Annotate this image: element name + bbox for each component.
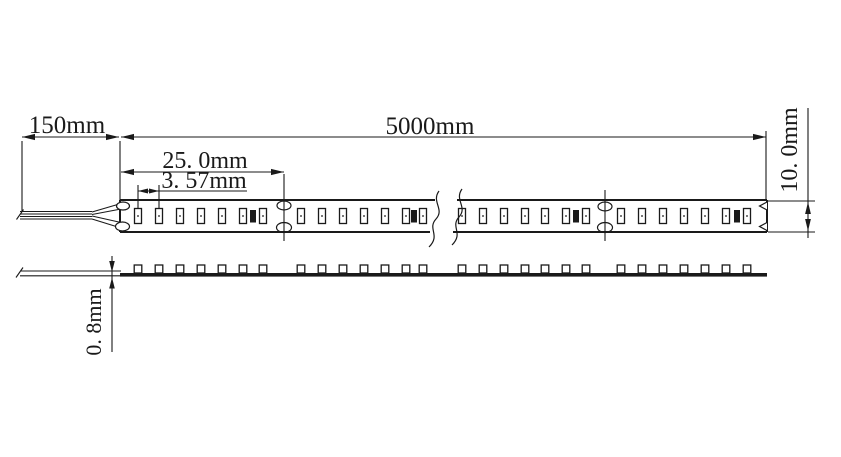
led-center-dot [342,215,344,217]
resistor-top-view [411,210,417,223]
led-center-dot [422,215,424,217]
pcb-side-profile [120,273,767,277]
arrowhead-right [106,134,119,140]
resistor-top-view [734,210,740,223]
led-side-view [722,265,730,273]
led-side-view [701,265,709,273]
led-center-dot [725,215,727,217]
led-center-dot [179,215,181,217]
break-marks [429,189,462,247]
side-led-row [134,265,751,273]
led-pitch-label: 3. 57mm [161,168,247,194]
led-center-dot [585,215,587,217]
drawing-svg: 150mm 5000mm 25. 0mm 3. 57mm 10. 0mm [0,0,841,457]
led-side-view [155,265,163,273]
led-center-dot [262,215,264,217]
led-center-dot [503,215,505,217]
led-center-dot [482,215,484,217]
led-side-view [521,265,529,273]
led-side-view [318,265,326,273]
arrowhead-top [805,202,811,214]
strip-thickness-label: 0. 8mm [81,288,106,355]
led-side-view [381,265,389,273]
led-side-view [541,265,549,273]
led-side-view [458,265,466,273]
dimension-3-57mm: 3. 57mm [138,168,247,208]
led-side-view [582,265,590,273]
led-center-dot [641,215,643,217]
led-center-dot [683,215,685,217]
solder-pad-left-top [117,202,130,210]
total-length-label: 5000mm [386,113,475,140]
arrowhead-up [109,278,115,289]
led-center-dot [321,215,323,217]
led-center-dot [242,215,244,217]
solder-pad-left-bottom [116,222,130,231]
led-side-view [562,265,570,273]
led-center-dot [704,215,706,217]
led-side-view [419,265,427,273]
led-strip-technical-drawing: 150mm 5000mm 25. 0mm 3. 57mm 10. 0mm [0,0,841,457]
arrowhead-down [109,261,115,272]
led-side-view [617,265,625,273]
arrowhead-left [138,189,148,194]
led-center-dot [524,215,526,217]
led-side-view [239,265,247,273]
led-side-view [134,265,142,273]
led-center-dot [746,215,748,217]
arrowhead-right [271,169,284,175]
wire-split-top-b [92,209,121,215]
led-side-view [479,265,487,273]
led-side-view [197,265,205,273]
led-side-view [339,265,347,273]
led-row [135,209,751,224]
strip-side-view [16,268,767,278]
arrowhead-left [121,169,134,175]
led-center-dot [300,215,302,217]
led-side-view [297,265,305,273]
dimension-10mm: 10. 0mm [768,107,815,238]
wire-split-bottom-a [92,216,121,223]
led-side-view [638,265,646,273]
led-center-dot [200,215,202,217]
led-center-dot [405,215,407,217]
arrowhead-right [149,189,159,194]
resistor-top-view [573,210,579,223]
led-center-dot [137,215,139,217]
led-center-dot [221,215,223,217]
led-side-view [743,265,751,273]
led-center-dot [565,215,567,217]
strip-top-view [120,200,767,232]
end-pad-right-top [760,202,768,210]
led-side-view [680,265,688,273]
led-side-view [659,265,667,273]
lead-wires-top-view [17,204,122,229]
led-side-view [259,265,267,273]
dimension-150mm: 150mm [22,112,119,212]
resistor-top-view [250,210,256,223]
led-side-view [360,265,368,273]
led-center-dot [384,215,386,217]
led-center-dot [363,215,365,217]
strip-width-label: 10. 0mm [777,107,803,193]
arrowhead-right [753,134,766,140]
lead-length-label: 150mm [29,112,106,139]
led-center-dot [620,215,622,217]
led-center-dot [158,215,160,217]
arrowhead-bottom [805,219,811,231]
led-side-view [402,265,410,273]
led-side-view [176,265,184,273]
led-side-view [218,265,226,273]
led-center-dot [461,215,463,217]
led-center-dot [662,215,664,217]
arrowhead-left [121,134,134,140]
led-side-view [500,265,508,273]
led-center-dot [544,215,546,217]
end-pad-right-bottom [760,223,768,231]
